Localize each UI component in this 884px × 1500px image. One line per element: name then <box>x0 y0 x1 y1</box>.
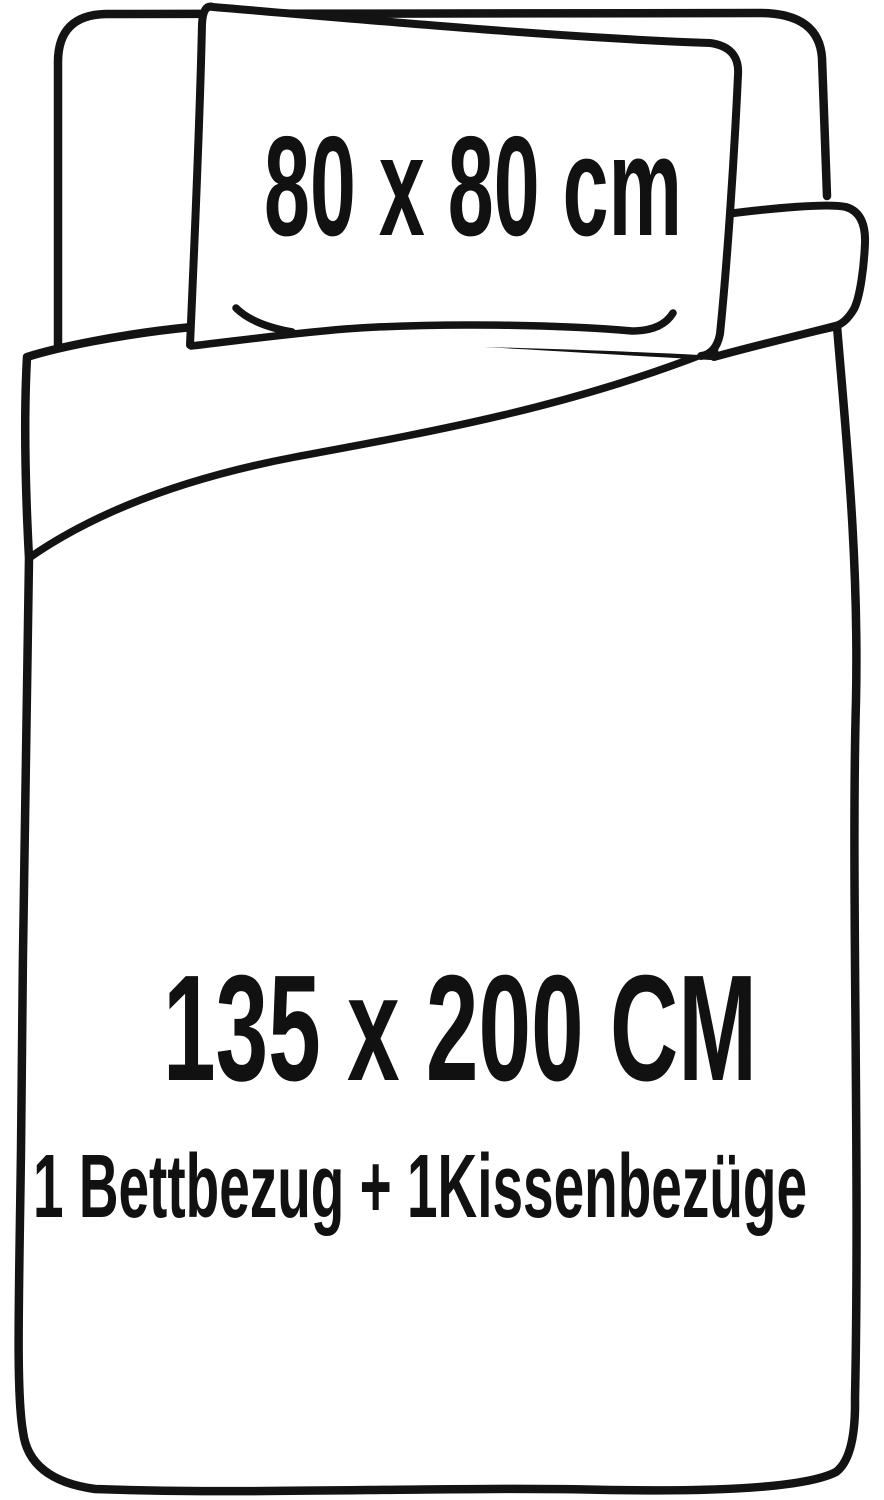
bedding-size-diagram: 80 x 80 cm 135 x 200 CM 1 Bettbezug + 1K… <box>0 0 884 1500</box>
bedding-line-drawing: 80 x 80 cm 135 x 200 CM 1 Bettbezug + 1K… <box>0 0 884 1500</box>
duvet-side-flap <box>714 206 865 357</box>
duvet-size-label: 135 x 200 CM <box>163 943 757 1112</box>
pillow-size-label: 80 x 80 cm <box>264 107 682 266</box>
set-contents-label: 1 Bettbezug + 1Kissenbezüge <box>33 1137 807 1237</box>
